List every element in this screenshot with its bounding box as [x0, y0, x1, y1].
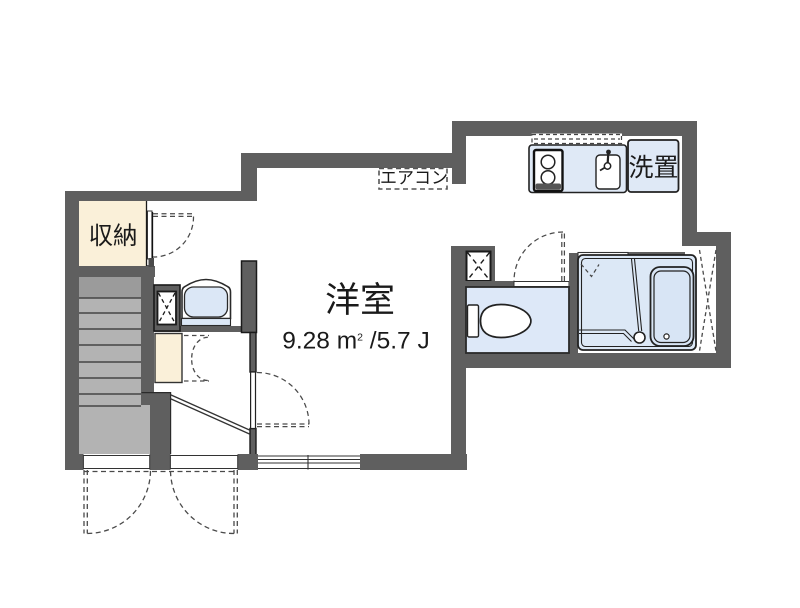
svg-text:エアコン: エアコン: [380, 169, 448, 188]
svg-text:収納: 収納: [89, 222, 138, 250]
svg-text:洋室: 洋室: [325, 281, 395, 320]
svg-text:9.28 m2 /5.7 J: 9.28 m2 /5.7 J: [282, 328, 429, 355]
svg-text:洗置: 洗置: [628, 154, 678, 182]
